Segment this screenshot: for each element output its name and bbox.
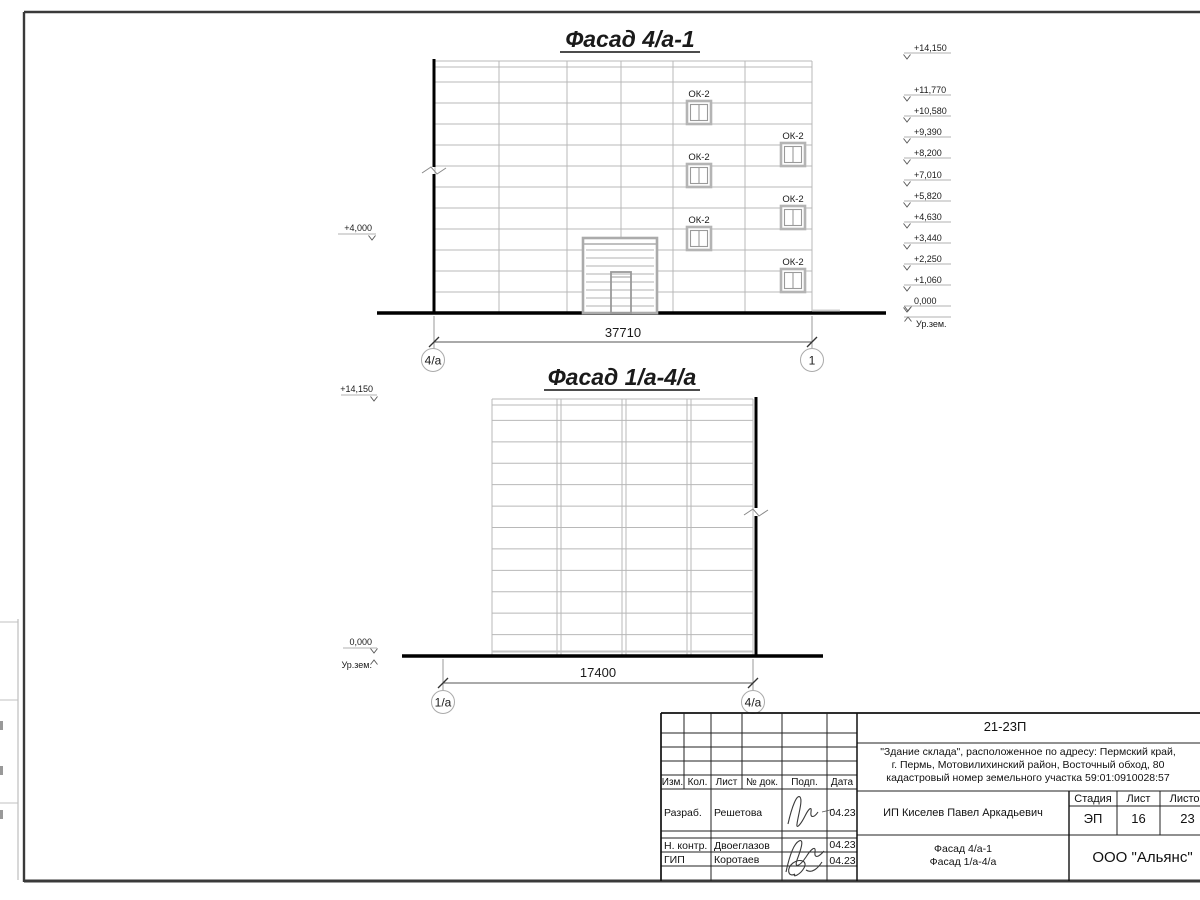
ground-level-label: Ур.зем. — [916, 319, 947, 329]
col-header-date: Дата — [827, 777, 857, 789]
window-label: ОК-2 — [688, 89, 709, 100]
elevation-mark-right: +11,770 — [914, 85, 946, 95]
row-role-razrab: Разраб. — [664, 807, 702, 819]
facade-side-grid — [492, 399, 753, 656]
axis-bubble-4a: 4/а — [745, 696, 762, 710]
col-header-kol: Кол. — [684, 777, 711, 789]
facade-top-heading: Фасад 4/а-1 — [565, 26, 694, 52]
window-ok2: ОК-2 — [687, 89, 711, 124]
row-name-gip: Коротаев — [714, 854, 759, 866]
elevation-mark-right: +14,150 — [914, 43, 947, 53]
window-label: ОК-2 — [688, 215, 709, 226]
facade-top-windows: ОК-2ОК-2ОК-2ОК-2ОК-2ОК-2 — [687, 89, 805, 292]
col-header-izm: Изм. — [661, 777, 684, 789]
signature-nkontr-gip — [786, 841, 824, 876]
signature-razrab — [788, 797, 818, 827]
drawing-sheet: ОК-2ОК-2ОК-2ОК-2ОК-2ОК-2377104/а1+4,000+… — [0, 0, 1200, 900]
facade-top-title: Фасад 4/а-1 — [560, 26, 700, 52]
col-header-list: Лист — [711, 777, 742, 789]
elevation-mark-right: +5,820 — [914, 191, 942, 201]
window-ok2: ОК-2 — [781, 194, 805, 229]
row-name-nkontr: Двоеглазов — [714, 840, 770, 852]
row-role-gip: ГИП — [664, 854, 685, 866]
stage-value: ЭП — [1069, 812, 1117, 827]
facade-side-title: Фасад 1/а-4/а — [544, 364, 700, 390]
elevation-mark-right: +4,630 — [914, 212, 942, 222]
elevation-mark-right: +9,390 — [914, 127, 942, 137]
row-date-gip: 04.23 — [828, 855, 857, 867]
elevation-mark-zero: 0,000 — [349, 637, 372, 647]
facade-side-heading: Фасад 1/а-4/а — [548, 364, 697, 390]
window-label: ОК-2 — [782, 257, 803, 268]
axis-bubble-1: 1 — [809, 354, 816, 368]
organization-name: ООО "Альянс" — [1070, 849, 1200, 866]
ground-level-label: Ур.зем. — [341, 660, 372, 670]
row-role-nkontr: Н. контр. — [664, 840, 707, 852]
facade-side-dimension: 17400 — [438, 659, 758, 690]
window-label: ОК-2 — [782, 131, 803, 142]
window-ok2: ОК-2 — [781, 131, 805, 166]
stage-label: Стадия — [1069, 793, 1117, 806]
left-margin-stamp-stub — [0, 619, 18, 880]
col-header-doc: № док. — [742, 777, 782, 789]
sheets-value: 23 — [1160, 812, 1200, 827]
drawing-title-line1: Фасад 4/а-1 — [858, 843, 1068, 855]
axis-bubble-1a: 1/а — [435, 696, 452, 710]
sheets-label: Листов — [1160, 793, 1200, 806]
elevation-mark-top: +14,150 — [340, 384, 373, 394]
window-ok2: ОК-2 — [781, 257, 805, 292]
elevation-mark-right: 0,000 — [914, 296, 937, 306]
titleblock-description-line1: "Здание склада", расположенное по адресу… — [860, 746, 1196, 758]
row-name-razrab: Решетова — [714, 807, 762, 819]
facade-side-axes: 1/а4/а — [432, 691, 765, 714]
titleblock-description-line2: г. Пермь, Мотовилихинский район, Восточн… — [860, 759, 1196, 771]
titleblock-client: ИП Киселев Павел Аркадьевич — [858, 807, 1068, 820]
row-date-razrab: 04.23 — [828, 807, 857, 819]
dimension-value: 17400 — [580, 665, 616, 680]
col-header-sign: Подп. — [782, 777, 827, 789]
row-date-nkontr: 04.23 — [828, 839, 857, 851]
elevation-mark-right: +10,580 — [914, 106, 947, 116]
drawing-title-line2: Фасад 1/а-4/а — [858, 856, 1068, 868]
sheet-label: Лист — [1117, 793, 1160, 806]
elevation-mark-right: +3,440 — [914, 233, 942, 243]
sheet-value: 16 — [1117, 812, 1160, 827]
window-ok2: ОК-2 — [687, 152, 711, 187]
elevation-mark-right: +8,200 — [914, 148, 942, 158]
window-label: ОК-2 — [782, 194, 803, 205]
window-ok2: ОК-2 — [687, 215, 711, 250]
elevation-mark-left: +4,000 — [344, 223, 372, 233]
facade-side-elevations: +14,1500,000Ур.зем. — [340, 384, 377, 670]
elevation-mark-right: +1,060 — [914, 275, 942, 285]
elevation-mark-right: +7,010 — [914, 170, 942, 180]
elevation-mark-right: +2,250 — [914, 254, 942, 264]
facade-top-gate — [583, 238, 657, 313]
dimension-value: 37710 — [605, 325, 641, 340]
facade-top-dimension: 37710 — [429, 316, 817, 349]
titleblock-description-line3: кадастровый номер земельного участка 59:… — [860, 772, 1196, 784]
window-label: ОК-2 — [688, 152, 709, 163]
axis-bubble-4a: 4/а — [425, 354, 442, 368]
titleblock-code: 21-23П — [858, 720, 1152, 735]
